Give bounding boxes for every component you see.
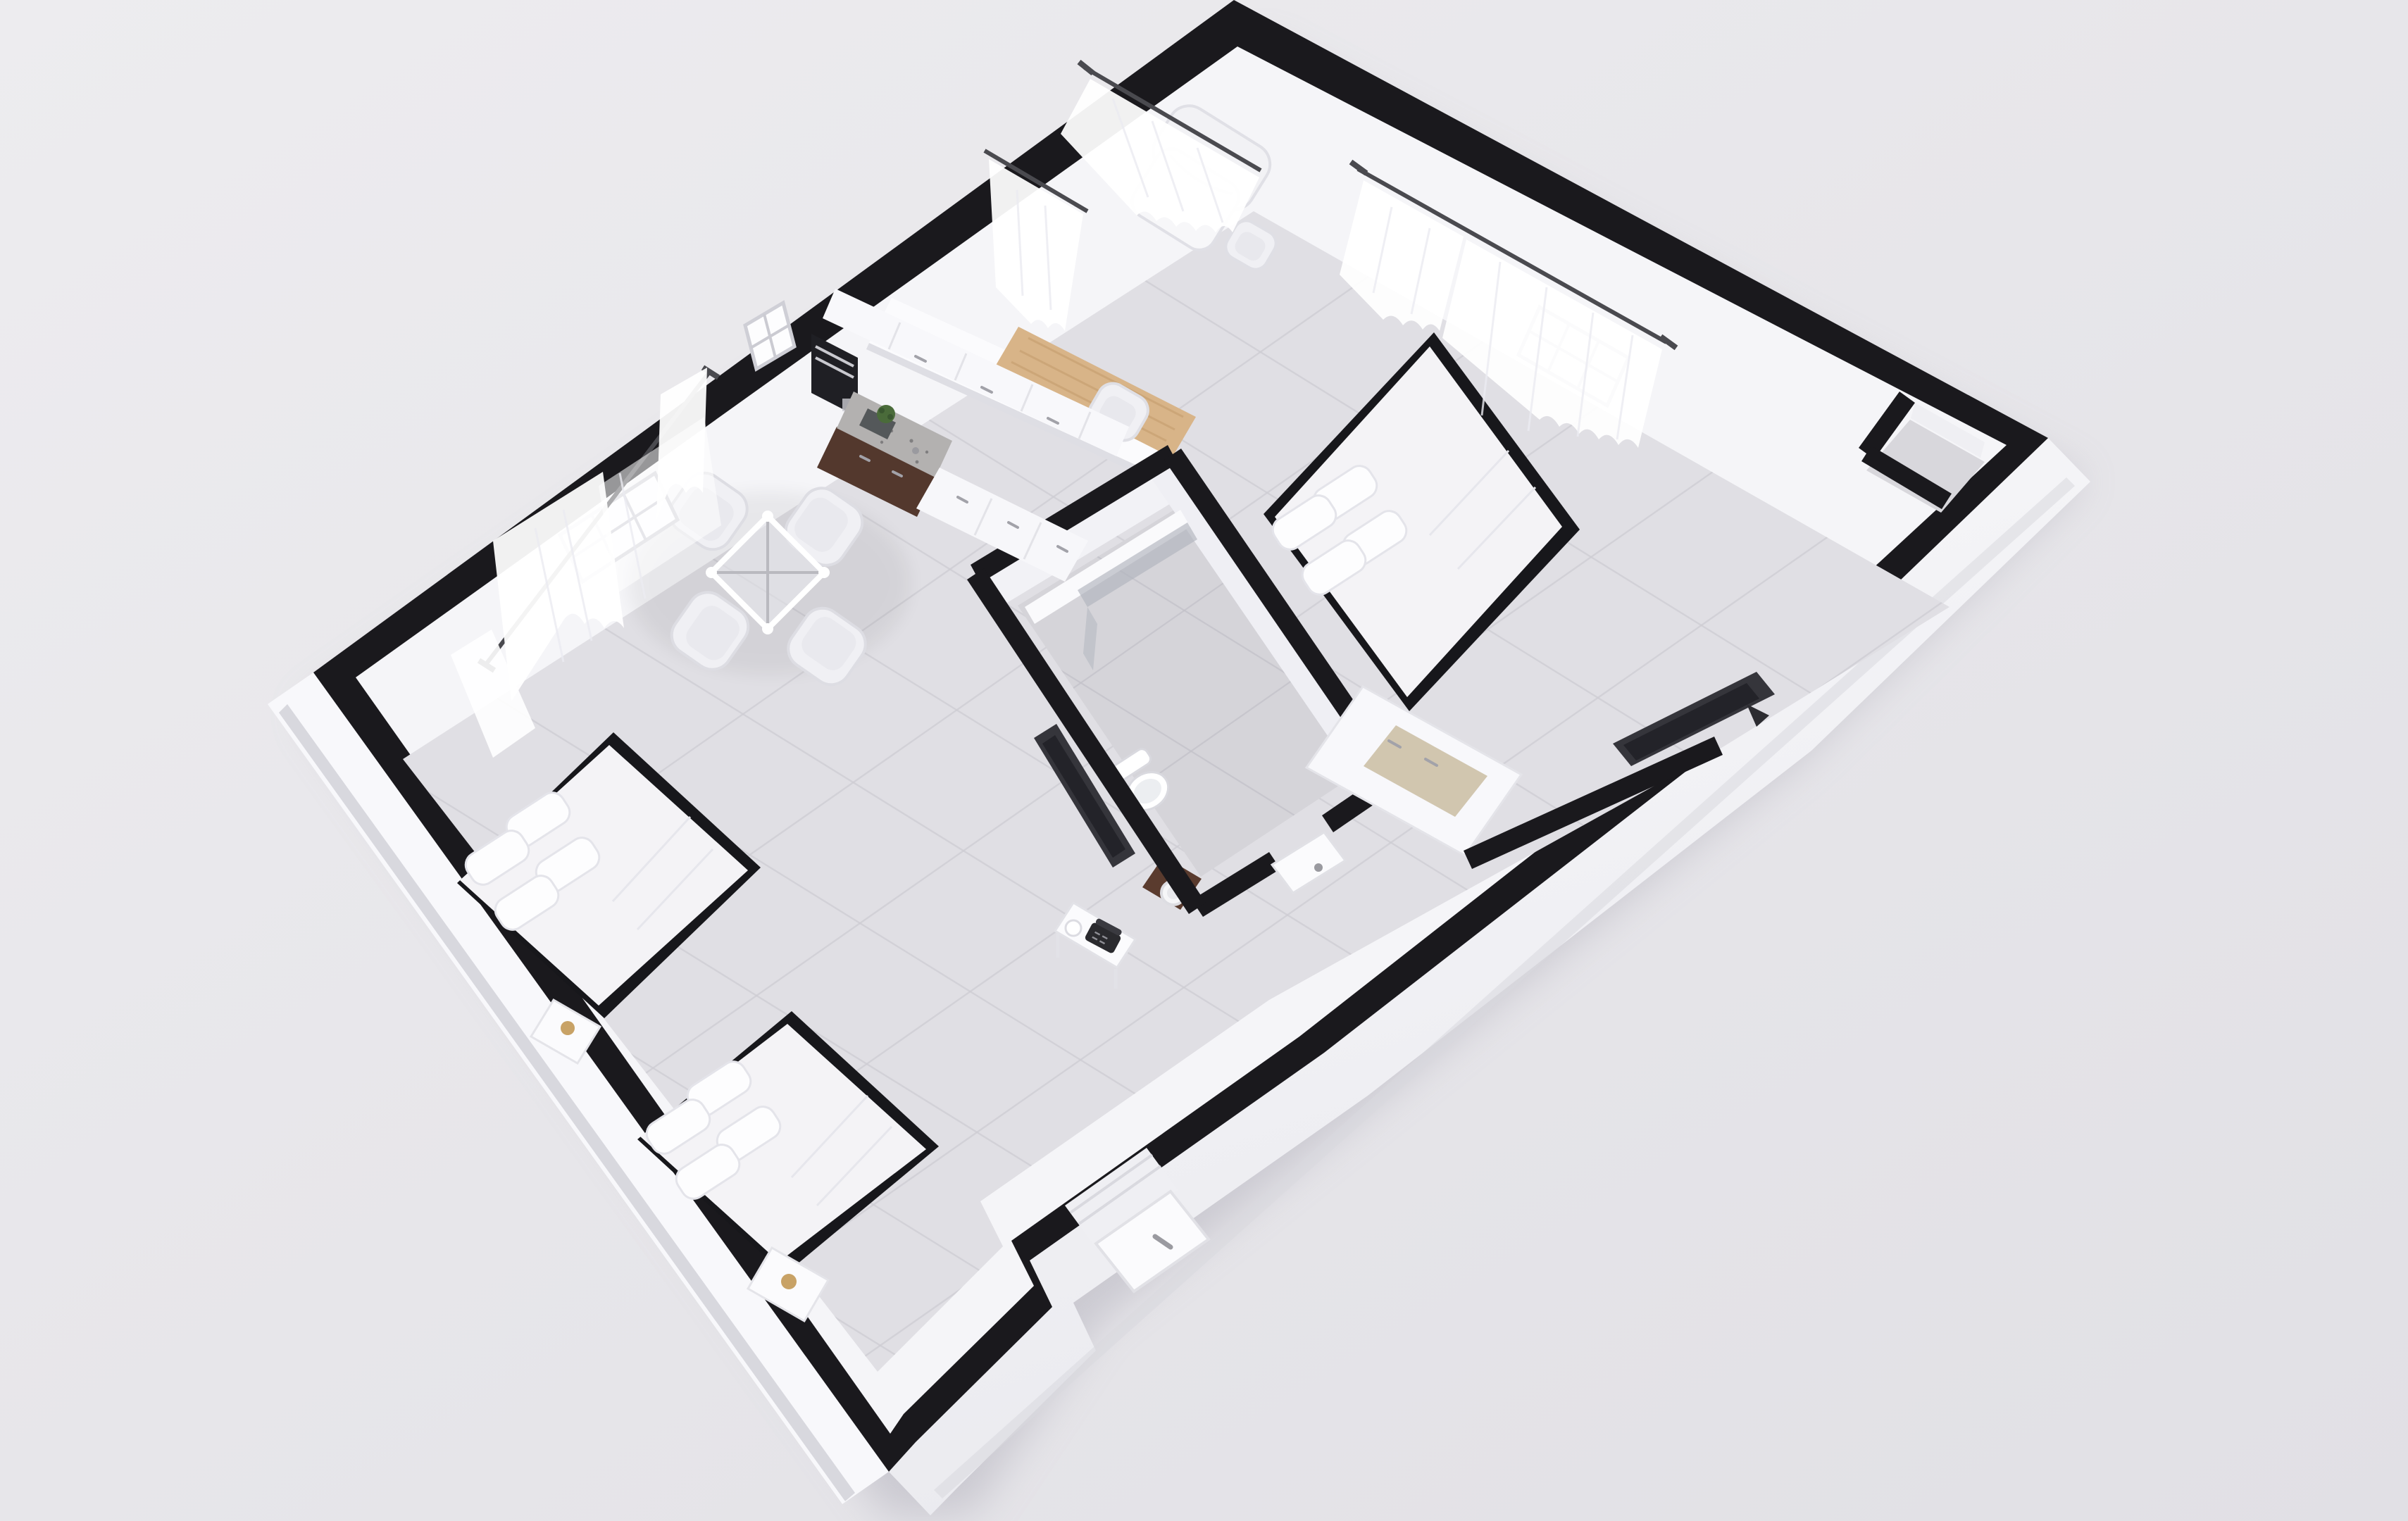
brass-knob <box>781 1274 797 1289</box>
brass-knob <box>561 1021 575 1035</box>
drain <box>912 447 919 454</box>
floor-plan-stage <box>0 0 2408 1521</box>
paper-roll <box>1066 920 1081 936</box>
plant <box>877 405 895 423</box>
floor-plan-3d-render <box>0 0 2408 1521</box>
bathroom-door-handle <box>1314 863 1323 872</box>
